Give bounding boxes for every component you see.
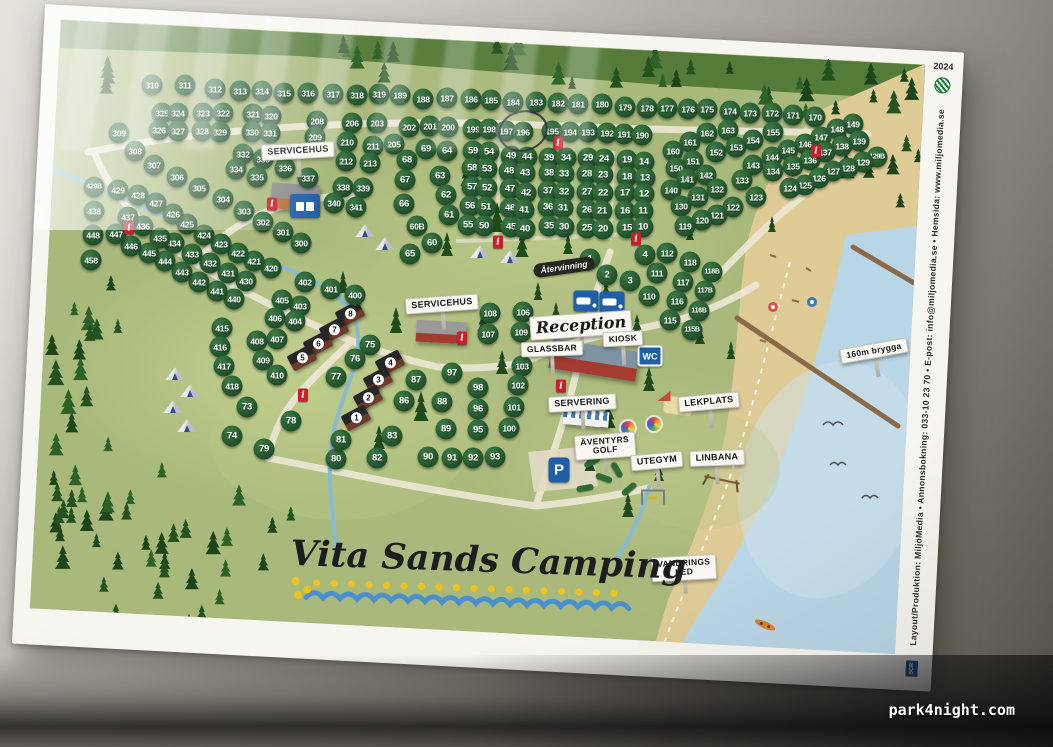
camp-spot: 62 — [436, 185, 457, 206]
camp-spot: 102 — [508, 375, 529, 396]
camp-spot: 3 — [620, 271, 641, 292]
camp-spot: 406 — [265, 308, 286, 329]
cabin-number: 2 — [363, 393, 374, 404]
camp-spot: 305 — [189, 178, 210, 199]
camp-spot: 101 — [504, 397, 525, 418]
camp-spot: 117B — [695, 281, 716, 302]
camp-spot: 87 — [406, 370, 427, 391]
camp-spot: 117 — [673, 272, 694, 293]
camp-spot: 402 — [295, 272, 316, 293]
camp-spot: 445 — [139, 243, 160, 264]
glassbar-sign-label: GLASSBAR — [521, 340, 584, 358]
title-dot — [294, 591, 302, 599]
info-marker-icon: i — [124, 222, 134, 235]
cabin-number: 1 — [351, 413, 362, 424]
camp-spot: 155 — [763, 122, 784, 143]
camp-spot: 61 — [439, 205, 460, 226]
camp-spot: 304 — [213, 189, 234, 210]
camp-spot: 172 — [762, 103, 783, 124]
camp-spot: 336 — [275, 158, 296, 179]
camp-spot: 318 — [347, 85, 368, 106]
aventyrsgolf-sign-label: ÄVENTYRSGOLF — [574, 432, 636, 461]
cabin-number: 7 — [329, 325, 340, 336]
camp-spot: 93 — [485, 447, 506, 468]
camp-spot: 83 — [382, 426, 403, 447]
camp-spot: 311 — [175, 75, 196, 96]
camp-spot: 80 — [326, 449, 347, 470]
camp-spot: 100 — [499, 418, 520, 439]
camp-spot: 314 — [252, 81, 273, 102]
camp-spot: 65 — [400, 244, 421, 265]
camp-spot: 179 — [615, 97, 636, 118]
camp-spot: 302 — [253, 212, 274, 233]
camp-spot: 334 — [226, 159, 247, 180]
camp-spot: 4 — [635, 245, 656, 266]
year-label: 2024 — [933, 61, 954, 72]
camp-spot: 116B — [689, 301, 710, 322]
camp-spot: 335 — [247, 167, 268, 188]
camp-spot: 88 — [432, 392, 453, 413]
cabin-number: 5 — [297, 353, 308, 364]
camp-spot: 401 — [321, 279, 342, 300]
camp-spot: 78 — [281, 411, 302, 432]
camp-spot: 152 — [706, 142, 727, 163]
title-dot — [291, 577, 299, 585]
camp-spot: 73 — [237, 397, 258, 418]
camp-spot: 89 — [436, 419, 457, 440]
camp-spot: 181 — [568, 94, 589, 115]
camp-spot: 186 — [461, 89, 482, 110]
camp-spot: 171 — [783, 105, 804, 126]
info-marker-icon: i — [493, 236, 503, 249]
camp-spot: 430 — [236, 271, 257, 292]
camp-spot: 438 — [84, 201, 105, 222]
camp-spot: 52 — [477, 178, 498, 199]
camp-spot: 81 — [331, 430, 352, 451]
camp-spot: 112 — [657, 243, 678, 264]
camp-spot: 123 — [746, 187, 767, 208]
camp-spot: 189 — [390, 85, 411, 106]
camp-spot: 427 — [146, 193, 167, 214]
camp-spot: 178 — [637, 98, 658, 119]
camp-spot: 428 — [128, 185, 149, 206]
camp-spot: 429B — [84, 177, 105, 198]
cabin-number: 6 — [313, 339, 324, 350]
camp-spot: 95 — [468, 420, 489, 441]
miljomedia-logo-icon — [934, 77, 951, 94]
camp-spot: 340 — [324, 193, 345, 214]
camp-spot: 90 — [418, 447, 439, 468]
camp-spot: 312 — [205, 79, 226, 100]
camp-spot: 429 — [108, 180, 129, 201]
info-marker-icon: i — [631, 233, 641, 246]
map-title-block: Vita Sands Camping — [289, 533, 641, 613]
camp-spot: 77 — [326, 367, 347, 388]
scr-logo: SCR — [905, 660, 918, 677]
kiosk-sign-label: KIOSK — [602, 330, 643, 347]
camp-spot: 118 — [680, 252, 701, 273]
camp-spot: 212 — [336, 151, 357, 172]
camp-spot: 177 — [657, 98, 678, 119]
camp-spot: 309 — [109, 123, 130, 144]
camp-spot: 331 — [260, 123, 281, 144]
camp-spot: 92 — [463, 448, 484, 469]
camp-spot: 458 — [81, 250, 102, 271]
camp-spot: 74 — [222, 426, 243, 447]
camp-spot: 135 — [783, 156, 804, 177]
camp-spot: 415 — [212, 318, 233, 339]
camp-spot: 86 — [394, 391, 415, 412]
parking-sign: P — [549, 458, 570, 483]
camp-spot: 174 — [720, 101, 741, 122]
camp-spot: 175 — [697, 99, 718, 120]
camp-spot: 200 — [438, 117, 459, 138]
camp-spot: 97 — [442, 363, 463, 384]
camp-spot: 64 — [437, 141, 458, 162]
gym-icon — [641, 490, 665, 505]
camp-spot: 316 — [298, 83, 319, 104]
camp-spot: 202 — [399, 117, 420, 138]
camp-spot: 306 — [167, 167, 188, 188]
camp-spot: 410 — [267, 365, 288, 386]
camp-spot: 153 — [726, 137, 747, 158]
camp-spot: 319 — [369, 84, 390, 105]
camp-spot: 60B — [407, 216, 428, 237]
camp-spot: 68 — [397, 150, 418, 171]
camp-spot: 134 — [763, 161, 784, 182]
camp-spot: 119 — [675, 216, 696, 237]
camp-spot: 43 — [515, 163, 536, 184]
camp-spot: 31 — [553, 198, 574, 219]
camp-spot: 326 — [149, 120, 170, 141]
watermark: park4night.com — [889, 701, 1015, 719]
camp-spot: 441 — [207, 281, 228, 302]
camp-spot: 63 — [430, 166, 451, 187]
camp-spot: 2 — [597, 265, 618, 286]
camp-spot: 53 — [477, 159, 498, 180]
camp-spot: 448 — [83, 225, 104, 246]
camp-spot: 308 — [125, 141, 146, 162]
info-marker-icon: i — [298, 389, 308, 402]
camp-spot: 76 — [345, 349, 366, 370]
camp-spot: 124 — [780, 178, 801, 199]
info-marker-icon: i — [553, 137, 563, 150]
camp-spot: 303 — [234, 201, 255, 222]
camp-spot: 180 — [592, 94, 613, 115]
camp-spot: 40 — [515, 219, 536, 240]
camp-spot: 213 — [360, 153, 381, 174]
camp-spot: 103 — [512, 356, 533, 377]
camp-spot: 60 — [422, 233, 443, 254]
camp-spot: 188 — [413, 89, 434, 110]
camp-spot: 98 — [468, 378, 489, 399]
camp-spot: 20 — [593, 219, 614, 240]
linbana-sign-label: LINBANA — [689, 449, 744, 467]
cabin-number: 8 — [345, 309, 356, 320]
camp-spot: 130 — [671, 196, 692, 217]
camp-spot: 82 — [367, 448, 388, 469]
camp-spot: 307 — [144, 155, 165, 176]
camp-spot: 317 — [323, 84, 344, 105]
camp-spot: 51 — [476, 197, 497, 218]
wc-sign: WC — [638, 346, 663, 367]
camp-spot: 176 — [678, 99, 699, 120]
camp-spot: 190 — [632, 125, 653, 146]
camp-spot: 132 — [707, 179, 728, 200]
tramp-icon — [645, 415, 663, 433]
glassbar-sign: GLASSBAR — [521, 340, 584, 358]
camp-spot: 108 — [480, 303, 501, 324]
camp-spot: 170 — [805, 107, 826, 128]
camp-spot: 115B — [682, 320, 703, 341]
camp-spot: 96 — [468, 399, 489, 420]
camp-spot: 173 — [740, 103, 761, 124]
camp-spot: 50 — [474, 216, 495, 237]
camp-spot: 115 — [660, 310, 681, 331]
camp-spot: 322 — [213, 103, 234, 124]
camp-spot: 339 — [353, 178, 374, 199]
camp-spot: 408 — [247, 331, 268, 352]
laundry-sign — [290, 194, 320, 218]
camp-spot: 79 — [254, 439, 275, 460]
camp-spot: 416 — [210, 337, 231, 358]
camp-spot: 182 — [548, 93, 569, 114]
caravan-sign — [574, 291, 599, 312]
camp-spot: 184 — [503, 92, 524, 113]
camp-spot: 69 — [416, 139, 437, 160]
camp-spot: 203 — [367, 113, 388, 134]
camp-spot: 187 — [437, 88, 458, 109]
camp-spot: 329 — [210, 122, 231, 143]
camp-spot: 300 — [291, 233, 312, 254]
camp-spot: 418 — [222, 376, 243, 397]
camp-spot: 111 — [647, 263, 668, 284]
info-marker-icon: i — [267, 198, 277, 211]
camp-spot: 109 — [511, 322, 532, 343]
camp-spot: 404 — [285, 311, 306, 332]
camp-spot: 110 — [639, 286, 660, 307]
camp-spot: 327 — [168, 121, 189, 142]
info-marker-icon: i — [556, 380, 566, 393]
photo-scene: 2024 Layout/Produktion: MiljöMedia • Ann… — [0, 0, 1053, 747]
camp-spot: 210 — [337, 132, 358, 153]
aventyrsgolf-sign: ÄVENTYRSGOLF — [574, 432, 636, 461]
info-marker-icon: i — [811, 145, 821, 158]
linbana-sign: LINBANA — [689, 449, 744, 467]
camp-spot: 66 — [394, 194, 415, 215]
camp-spot: 185 — [481, 90, 502, 111]
camp-spot: 417 — [214, 356, 235, 377]
kiosk-sign: KIOSK — [602, 330, 643, 347]
camp-spot: 310 — [142, 75, 163, 96]
camp-spot: 116 — [667, 291, 688, 312]
camp-spot: 315 — [274, 83, 295, 104]
camp-spot: 193 — [578, 122, 599, 143]
info-marker-icon: i — [457, 332, 467, 345]
camp-spot: 91 — [442, 448, 463, 469]
camp-spot: 30 — [554, 217, 575, 238]
camp-spot: 107 — [478, 324, 499, 345]
camp-spot: 407 — [267, 329, 288, 350]
camp-spot: 67 — [395, 170, 416, 191]
camp-spot: 118B — [702, 262, 723, 283]
camp-spot: 432 — [200, 253, 221, 274]
camp-spot: 400 — [345, 285, 366, 306]
camp-spot: 206 — [342, 113, 363, 134]
camp-spot: 313 — [230, 81, 251, 102]
camp-spot: 341 — [346, 197, 367, 218]
